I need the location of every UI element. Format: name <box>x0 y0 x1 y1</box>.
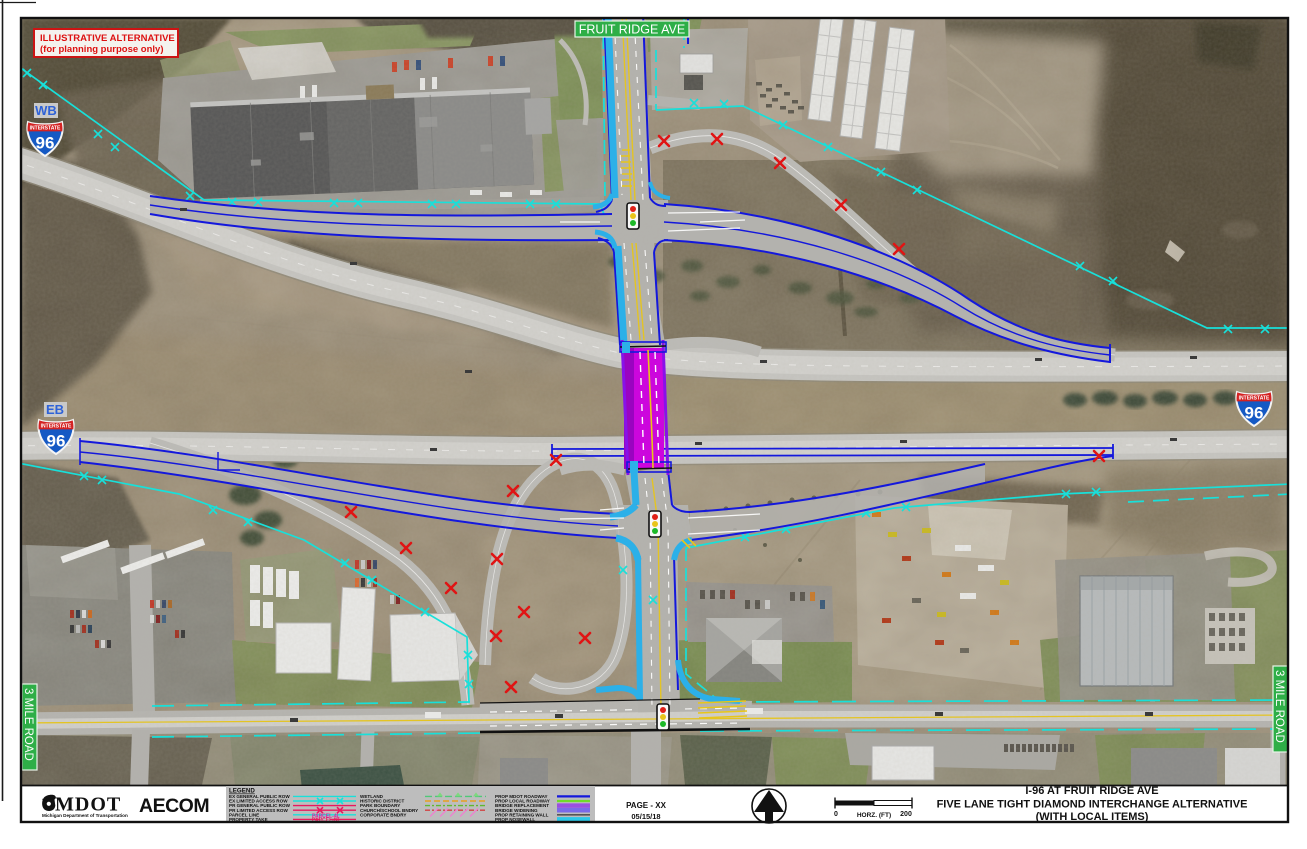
svg-text:(for planning purpose only): (for planning purpose only) <box>40 44 164 55</box>
svg-text:FIVE LANE TIGHT DIAMOND INTERC: FIVE LANE TIGHT DIAMOND INTERCHANGE ALTE… <box>937 799 1248 811</box>
svg-text:05/15/18: 05/15/18 <box>631 812 660 821</box>
svg-text:HORZ. (FT): HORZ. (FT) <box>857 812 891 819</box>
svg-text:PAGE - XX: PAGE - XX <box>626 801 667 810</box>
svg-text:I-96 AT FRUIT RIDGE AVE: I-96 AT FRUIT RIDGE AVE <box>1025 785 1158 797</box>
svg-text:3 MILE ROAD: 3 MILE ROAD <box>1273 670 1285 743</box>
svg-text:EB: EB <box>46 402 64 417</box>
svg-text:ILLUSTRATIVE ALTERNATIVE: ILLUSTRATIVE ALTERNATIVE <box>40 33 175 44</box>
svg-text:0: 0 <box>834 811 838 818</box>
svg-text:200: 200 <box>900 811 912 818</box>
svg-text:FRUIT RIDGE AVE: FRUIT RIDGE AVE <box>579 23 686 37</box>
svg-text:AECOM: AECOM <box>139 795 209 817</box>
svg-text:3 MILE ROAD: 3 MILE ROAD <box>22 688 34 761</box>
svg-text:WB: WB <box>35 103 57 118</box>
svg-text:CORPORATE BNDRY: CORPORATE BNDRY <box>360 812 406 817</box>
svg-text:Michigan Department of Transpo: Michigan Department of Transportation <box>42 813 128 818</box>
